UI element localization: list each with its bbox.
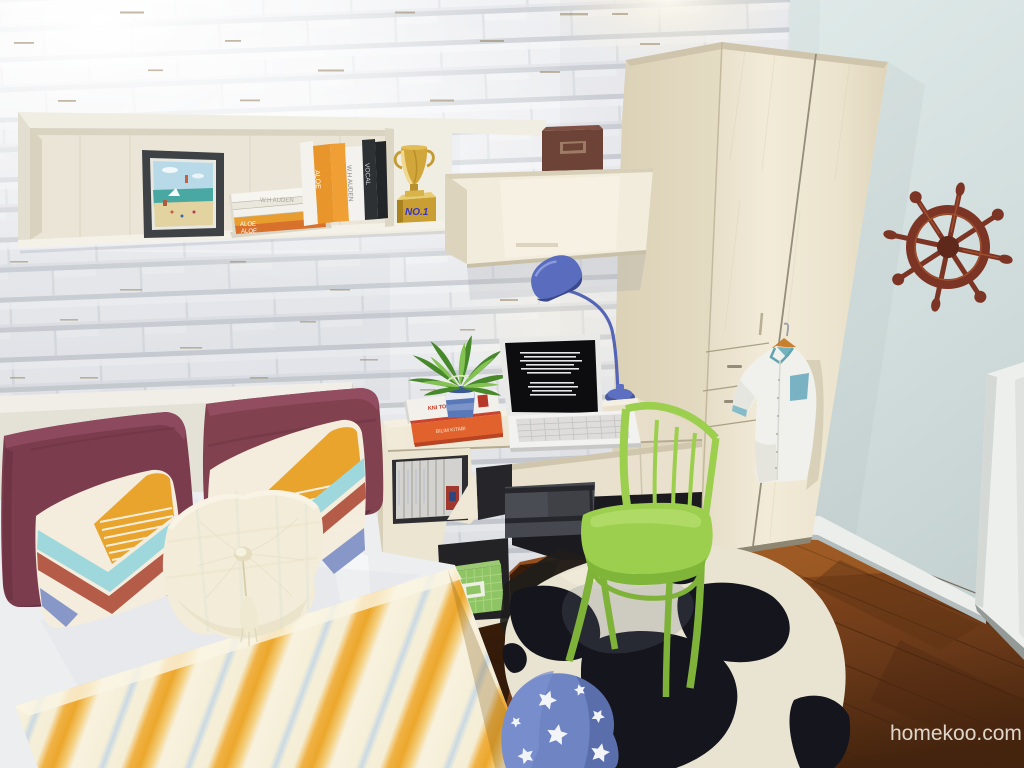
svg-text:NO.1: NO.1 xyxy=(405,207,429,218)
svg-text:ALOE: ALOE xyxy=(313,170,321,189)
svg-text:homekoo.com: homekoo.com xyxy=(890,722,1022,745)
svg-text:W.H AUDEN: W.H AUDEN xyxy=(260,198,294,204)
svg-text:ALOE: ALOE xyxy=(240,222,256,228)
svg-text:VOCAL: VOCAL xyxy=(363,163,371,186)
svg-text:ALOE: ALOE xyxy=(241,229,257,235)
